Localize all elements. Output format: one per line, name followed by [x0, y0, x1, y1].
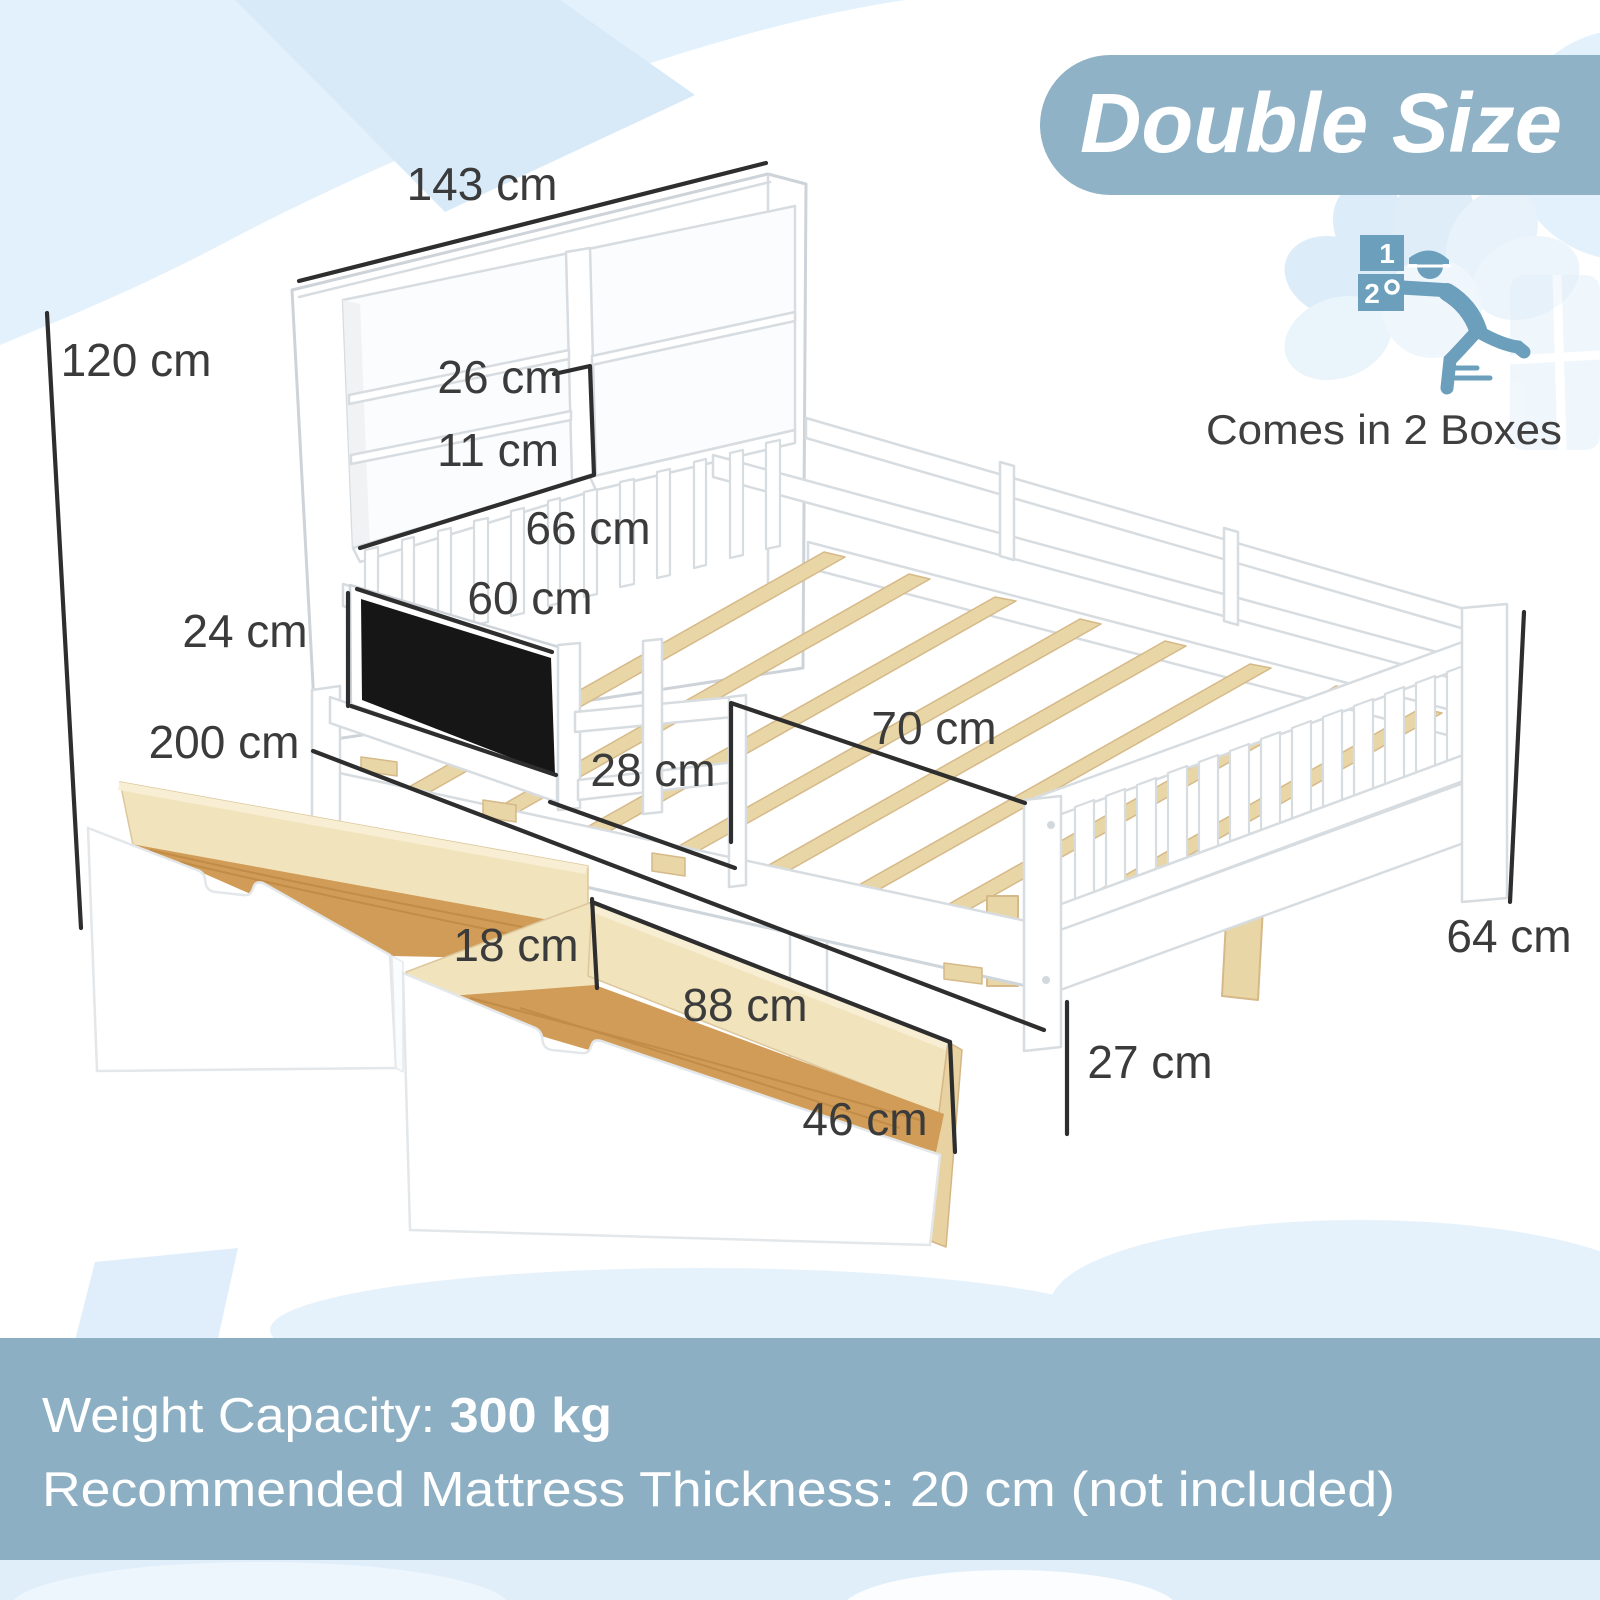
svg-text:Recommended Mattress Thickness: Recommended Mattress Thickness: 20 cm (n… [42, 1463, 1395, 1517]
svg-text:46 cm: 46 cm [802, 1093, 927, 1145]
svg-text:11 cm: 11 cm [437, 424, 559, 476]
svg-text:120 cm: 120 cm [61, 334, 212, 386]
svg-text:70 cm: 70 cm [871, 702, 996, 754]
svg-text:2: 2 [1364, 278, 1380, 309]
svg-text:88 cm: 88 cm [682, 979, 807, 1031]
svg-text:18 cm: 18 cm [453, 919, 578, 971]
svg-text:28 cm: 28 cm [590, 744, 715, 796]
svg-text:64 cm: 64 cm [1446, 910, 1571, 962]
svg-text:66 cm: 66 cm [525, 502, 650, 554]
svg-text:27 cm: 27 cm [1087, 1036, 1212, 1088]
svg-text:143 cm: 143 cm [407, 158, 558, 210]
svg-text:1: 1 [1379, 238, 1395, 269]
svg-text:24 cm: 24 cm [182, 605, 307, 657]
svg-text:26 cm: 26 cm [437, 351, 562, 403]
svg-text:60 cm: 60 cm [467, 572, 592, 624]
svg-text:Comes in 2 Boxes: Comes in 2 Boxes [1206, 406, 1562, 453]
svg-text:200 cm: 200 cm [149, 716, 300, 768]
svg-text:Weight Capacity: 300 kg: Weight Capacity: 300 kg [42, 1389, 612, 1443]
svg-text:Double Size: Double Size [1080, 76, 1562, 170]
